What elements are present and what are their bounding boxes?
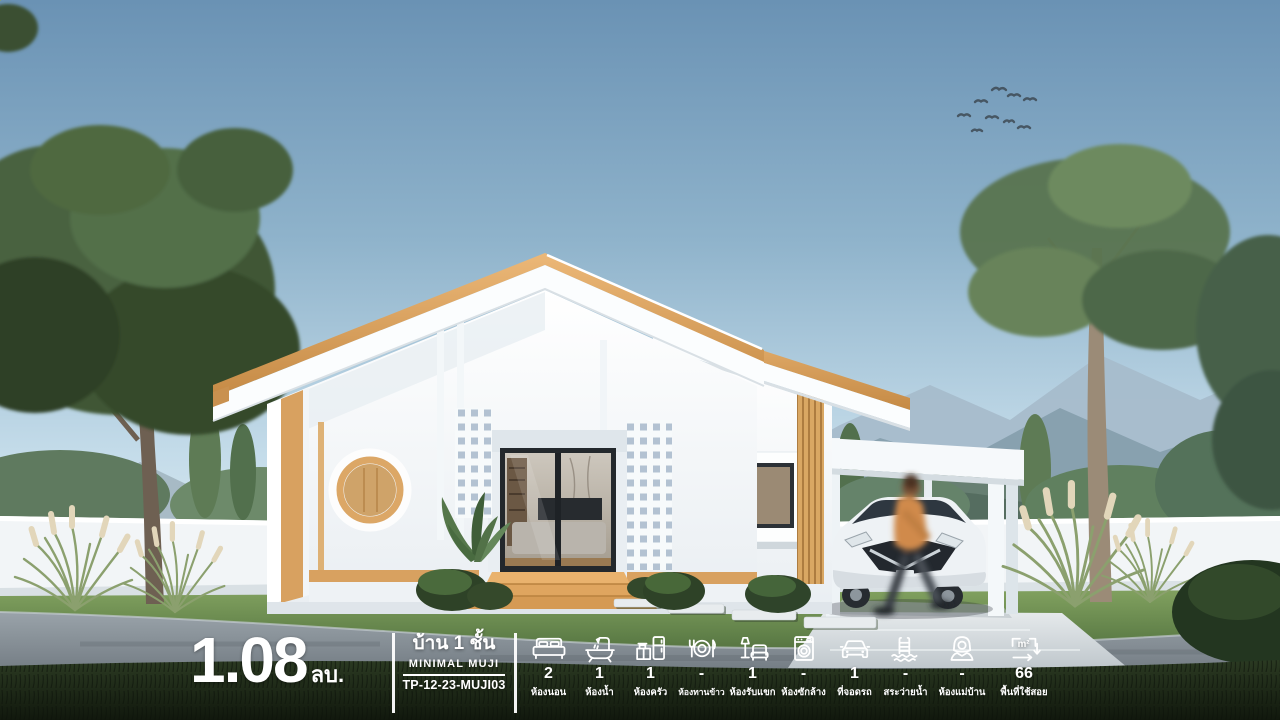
stat-item-usable-area: m² 66 พื้นที่ใช้สอย (993, 633, 1055, 700)
bathtub-icon (582, 633, 618, 664)
living-room-icon (735, 633, 771, 664)
svg-text:m²: m² (1018, 639, 1031, 650)
stat-item-laundry-room: - ห้องซักล้าง (778, 633, 829, 700)
divider (514, 633, 517, 713)
kitchen-icon (633, 633, 669, 664)
stat-item-bedroom: 2 ห้องนอน (523, 633, 574, 700)
car-icon (837, 633, 873, 664)
stat-item-kitchen: 1 ห้องครัว (625, 633, 676, 700)
title-block: บ้าน 1 ชั้น MINIMAL MUJI TP-12-23-MUJI03 (400, 633, 508, 691)
price-unit: ลบ. (311, 662, 345, 687)
dining-icon (684, 633, 720, 664)
divider (392, 633, 395, 713)
info-overlay: 1.08ลบ. บ้าน 1 ชั้น MINIMAL MUJI TP-12-2… (0, 0, 1280, 720)
spec-stats-row: 2 ห้องนอน 1 ห้องน้ำ 1 ห้องครัว (523, 633, 1055, 700)
house-type-title: บ้าน 1 ชั้น (400, 633, 508, 656)
bed-icon (531, 633, 567, 664)
washing-machine-icon (786, 633, 822, 664)
maid-icon (944, 633, 980, 664)
stat-item-living-room: 1 ห้องรับแขก (727, 633, 778, 700)
pool-icon (888, 633, 924, 664)
stat-item-maid-room: - ห้องแม่บ้าน (931, 633, 993, 700)
price: 1.08ลบ. (190, 628, 344, 692)
area-icon: m² (1006, 633, 1042, 664)
price-amount: 1.08 (190, 624, 307, 696)
stat-item-swimming-pool: - สระว่ายน้ำ (880, 633, 931, 700)
stat-item-parking: 1 ที่จอดรถ (829, 633, 880, 700)
series-name: MINIMAL MUJI (400, 659, 508, 670)
house-advertisement-render: 1.08ลบ. บ้าน 1 ชั้น MINIMAL MUJI TP-12-2… (0, 0, 1280, 720)
stat-item-bathroom: 1 ห้องน้ำ (574, 633, 625, 700)
title-divider-line (403, 674, 505, 676)
stat-item-dining-room: - ห้องทานข้าว (676, 633, 727, 699)
model-code: TP-12-23-MUJI03 (400, 679, 508, 692)
